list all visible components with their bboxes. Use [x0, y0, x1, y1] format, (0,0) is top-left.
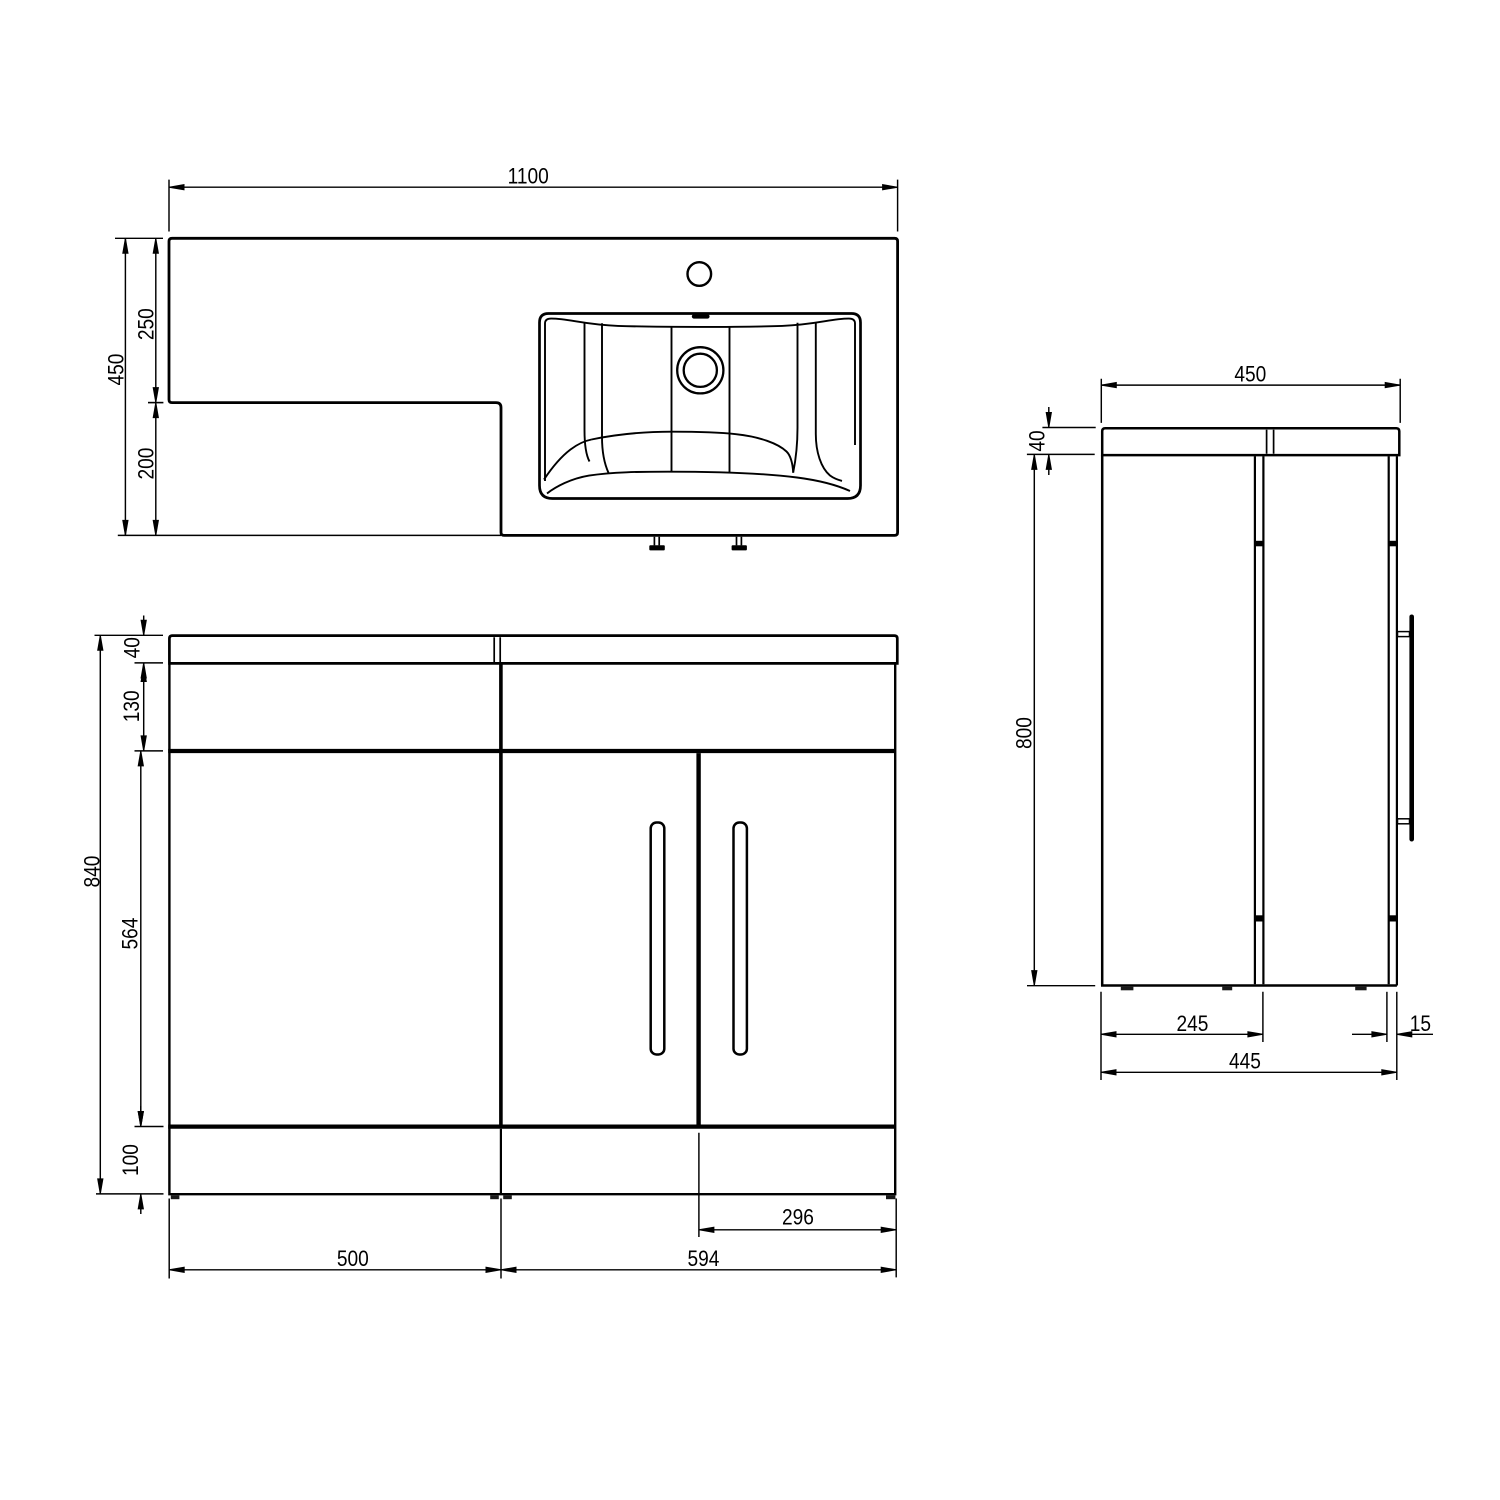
- svg-text:200: 200: [134, 448, 159, 480]
- svg-text:1100: 1100: [508, 164, 549, 189]
- svg-text:100: 100: [118, 1144, 143, 1176]
- svg-text:40: 40: [1025, 430, 1050, 451]
- svg-text:840: 840: [80, 856, 105, 888]
- svg-text:450: 450: [1234, 362, 1266, 387]
- svg-text:250: 250: [134, 308, 159, 340]
- svg-text:450: 450: [104, 354, 129, 386]
- svg-text:800: 800: [1012, 717, 1037, 749]
- svg-text:130: 130: [120, 690, 145, 722]
- svg-text:40: 40: [120, 637, 145, 658]
- svg-text:564: 564: [118, 918, 143, 950]
- svg-text:594: 594: [688, 1247, 720, 1272]
- svg-text:500: 500: [337, 1247, 369, 1272]
- svg-text:245: 245: [1176, 1012, 1208, 1037]
- svg-text:15: 15: [1410, 1012, 1431, 1037]
- svg-text:296: 296: [782, 1205, 814, 1230]
- svg-text:445: 445: [1229, 1049, 1261, 1074]
